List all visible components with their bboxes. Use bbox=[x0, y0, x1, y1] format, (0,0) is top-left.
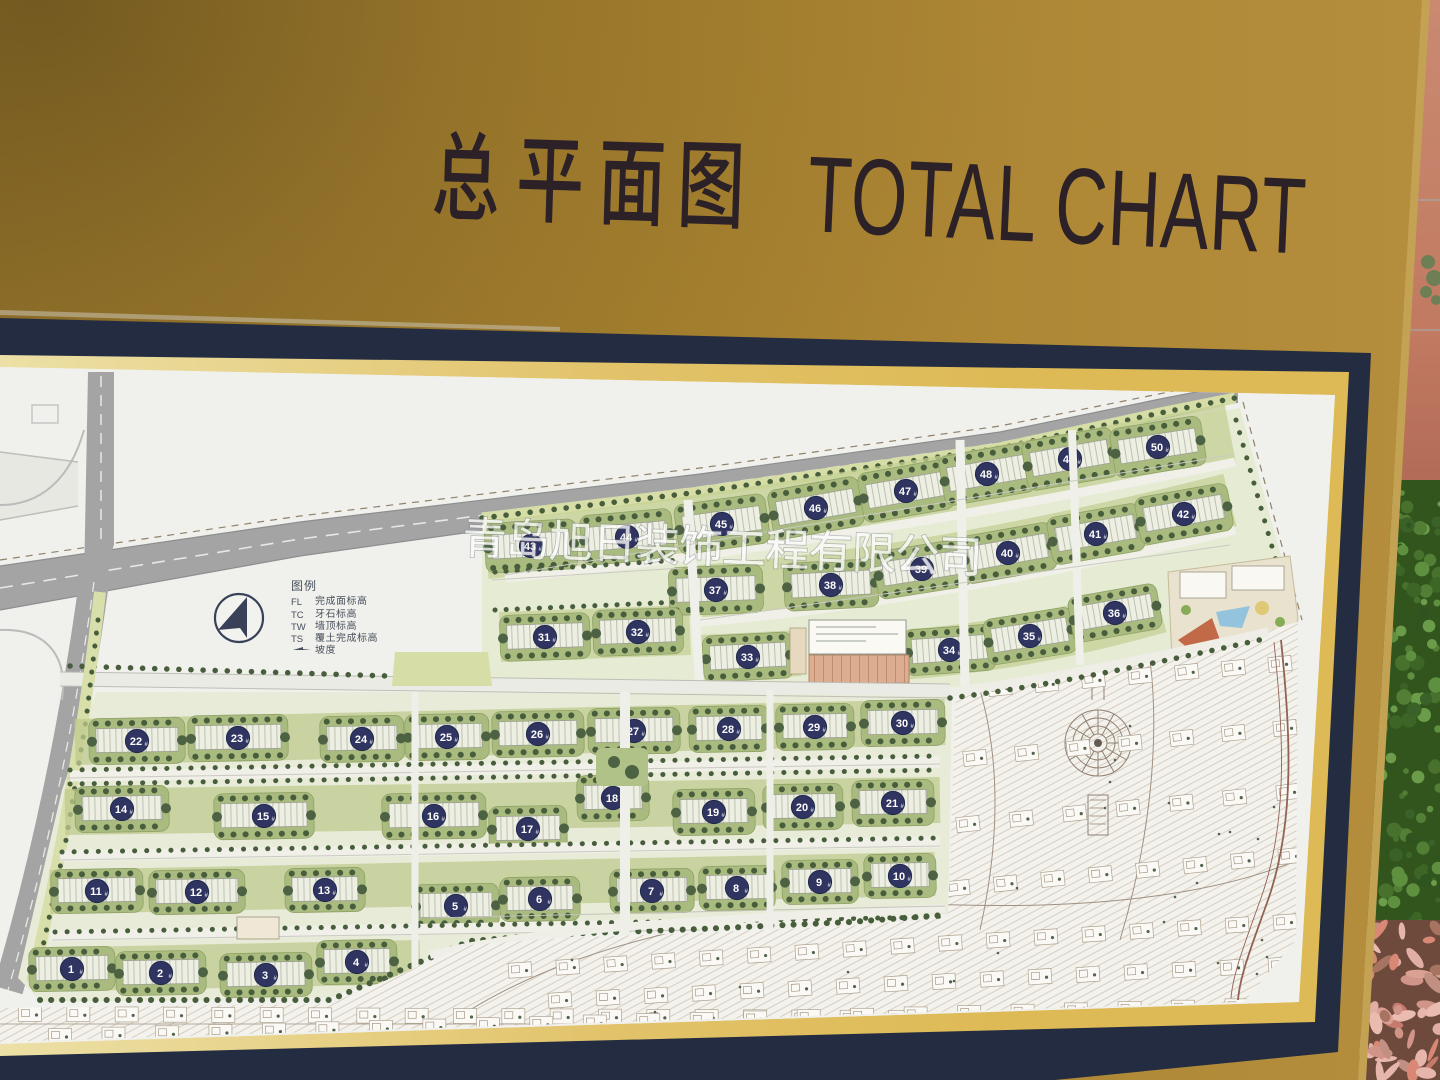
svg-text:TOTAL CHART: TOTAL CHART bbox=[805, 135, 1309, 277]
